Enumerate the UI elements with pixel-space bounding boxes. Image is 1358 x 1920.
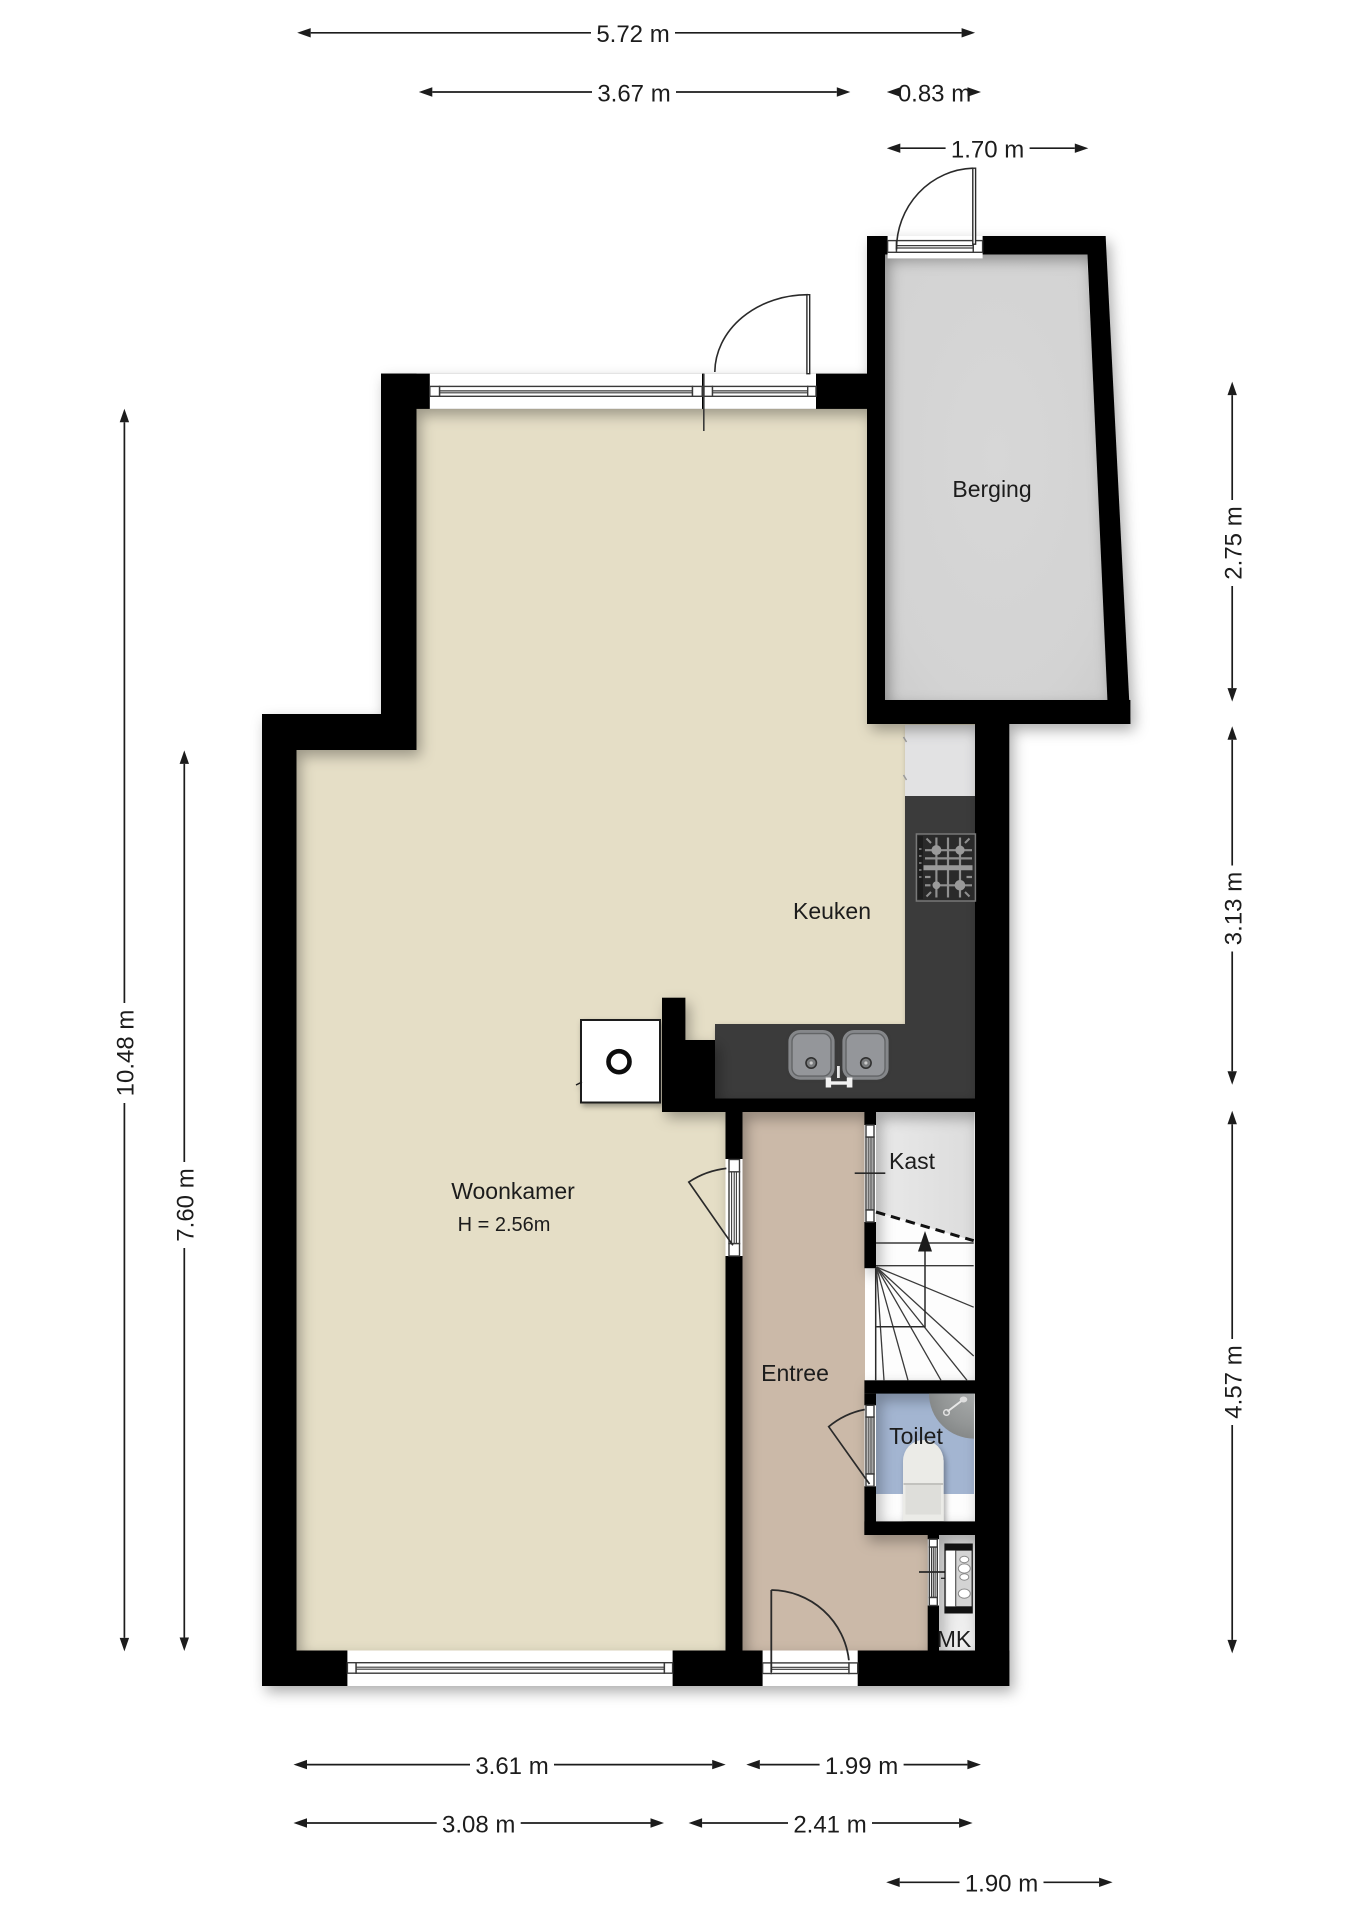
- svg-text:10.48 m: 10.48 m: [113, 1010, 140, 1097]
- svg-text:2.41 m: 2.41 m: [793, 1811, 866, 1838]
- svg-text:3.67 m: 3.67 m: [597, 80, 670, 107]
- svg-text:1.90 m: 1.90 m: [965, 1871, 1038, 1898]
- svg-text:Keuken: Keuken: [793, 898, 871, 924]
- svg-text:3.13 m: 3.13 m: [1221, 872, 1248, 945]
- svg-text:Toilet: Toilet: [889, 1423, 943, 1449]
- svg-text:3.61 m: 3.61 m: [475, 1753, 548, 1780]
- svg-text:Kast: Kast: [889, 1148, 936, 1174]
- svg-text:3.08 m: 3.08 m: [442, 1811, 515, 1838]
- svg-text:Berging: Berging: [952, 476, 1031, 502]
- svg-text:Woonkamer: Woonkamer: [451, 1178, 575, 1204]
- svg-text:2.75 m: 2.75 m: [1221, 506, 1248, 579]
- svg-text:4.57 m: 4.57 m: [1221, 1345, 1248, 1418]
- svg-text:H = 2.56m: H = 2.56m: [458, 1214, 551, 1236]
- svg-text:0.83 m: 0.83 m: [898, 80, 971, 107]
- svg-text:Entree: Entree: [761, 1360, 829, 1386]
- svg-text:MK: MK: [937, 1626, 972, 1652]
- svg-text:1.70 m: 1.70 m: [951, 137, 1024, 164]
- svg-text:1.99 m: 1.99 m: [825, 1753, 898, 1780]
- svg-text:7.60 m: 7.60 m: [173, 1168, 200, 1241]
- svg-text:5.72 m: 5.72 m: [596, 21, 669, 48]
